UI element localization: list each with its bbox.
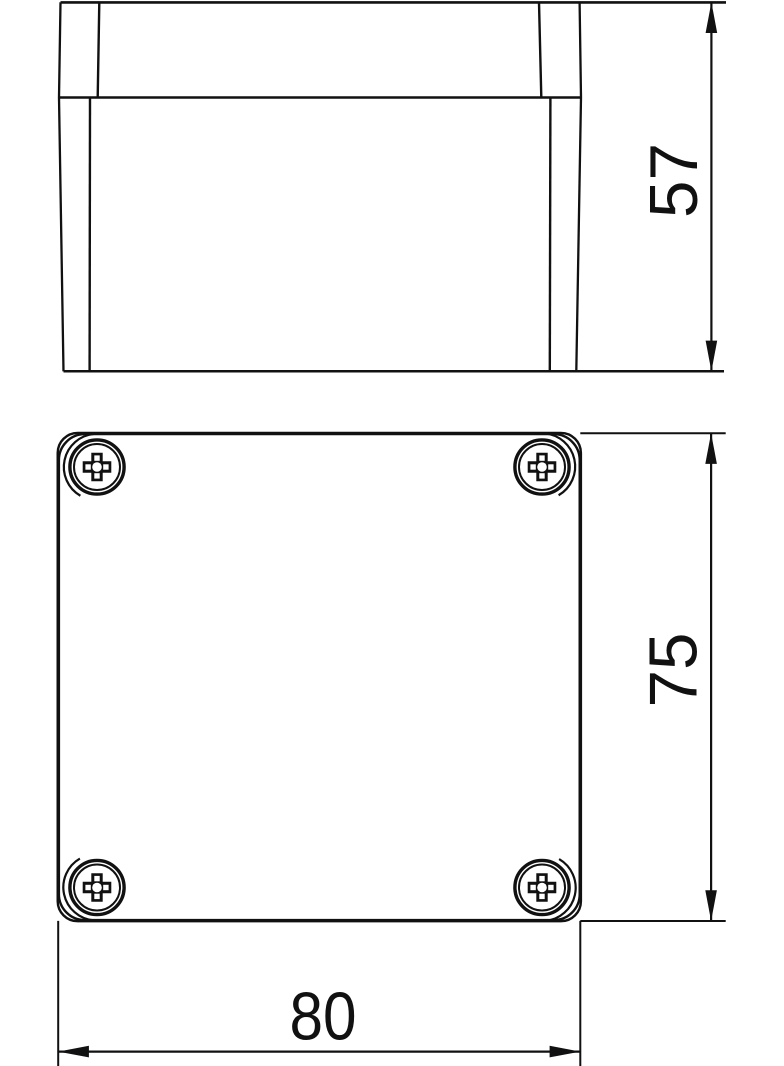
svg-text:75: 75 [636, 633, 712, 708]
svg-text:80: 80 [290, 979, 357, 1055]
svg-text:57: 57 [636, 143, 712, 218]
